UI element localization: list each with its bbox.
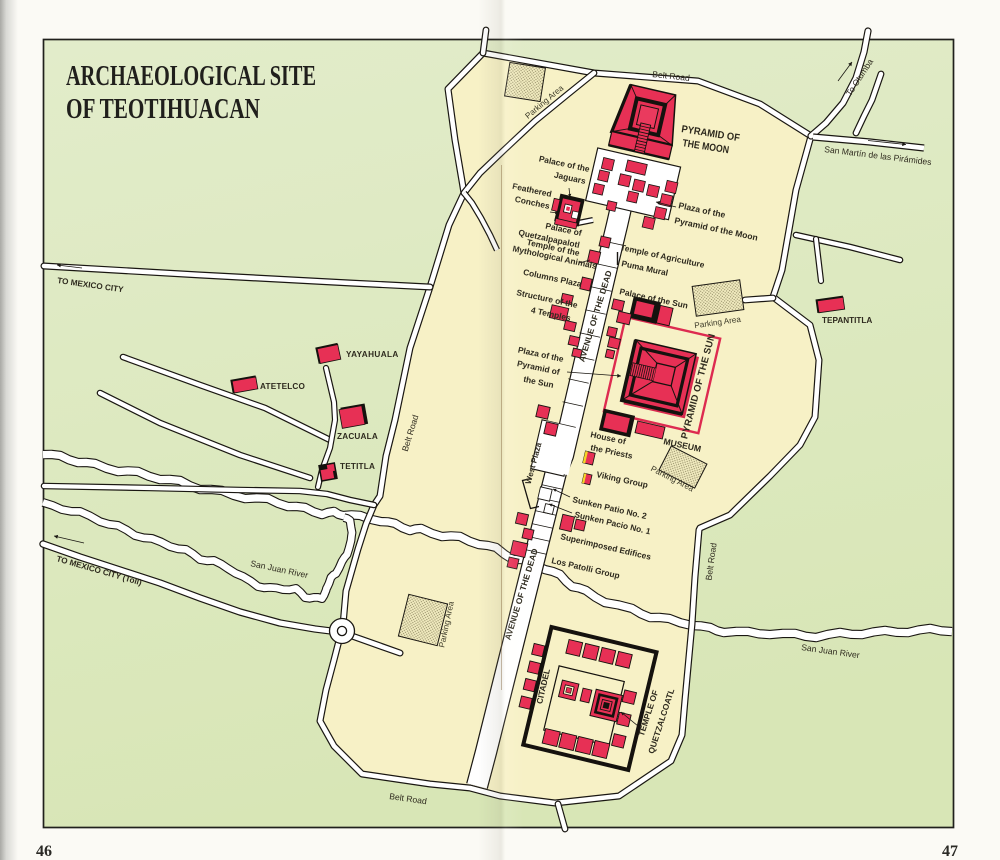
svg-text:47: 47 [942,843,958,860]
svg-text:ZACUALA: ZACUALA [337,432,378,441]
svg-text:TEPANTITLA: TEPANTITLA [822,316,872,325]
svg-text:TETITLA: TETITLA [340,462,375,471]
svg-text:ARCHAEOLOGICAL SITE: ARCHAEOLOGICAL SITE [66,61,316,92]
svg-text:46: 46 [36,843,52,860]
svg-text:YAYAHUALA: YAYAHUALA [346,350,399,359]
svg-text:OF TEOTIHUACAN: OF TEOTIHUACAN [66,94,260,125]
svg-text:ATETELCO: ATETELCO [260,382,306,391]
